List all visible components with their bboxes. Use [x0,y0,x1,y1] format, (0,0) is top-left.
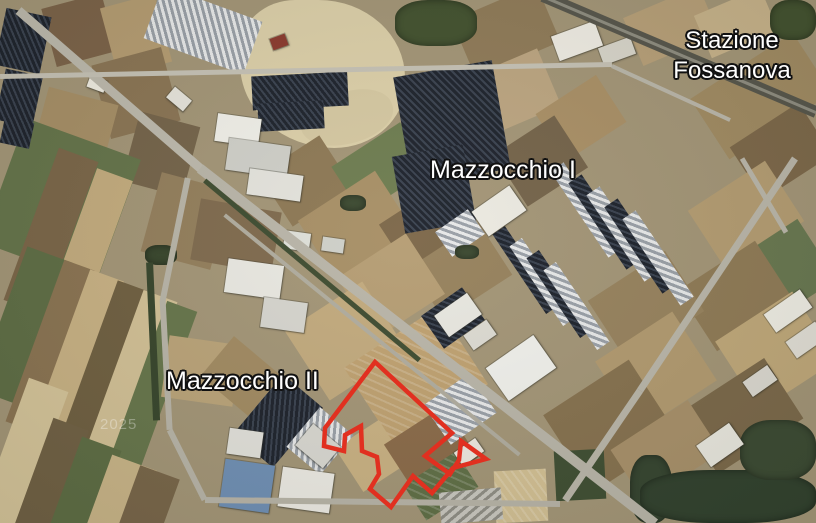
building [551,21,603,61]
building [226,428,263,458]
tree-cover [395,0,477,46]
building [277,467,334,514]
building [260,297,308,333]
building [598,37,636,66]
building [321,237,345,254]
imagery-watermark: 2025 [100,416,137,433]
solar-array [0,117,34,149]
building [486,335,556,401]
place-label-line1: Stazione [650,26,814,56]
solar-array [257,100,324,131]
place-label-mazzocchio-1: Mazzocchio I [430,156,576,185]
tree-cover [740,420,816,480]
tree-cover [340,195,366,211]
place-label-stazione-fossanova: Stazione Fossanova [650,26,814,86]
place-label-line2: Fossanova [650,56,814,86]
satellite-map-canvas[interactable]: Stazione Fossanova Mazzocchio I Mazzocch… [0,0,816,523]
place-label-mazzocchio-2: Mazzocchio II [166,367,319,396]
building [219,459,275,513]
building [224,258,284,299]
tree-cover [455,245,479,259]
